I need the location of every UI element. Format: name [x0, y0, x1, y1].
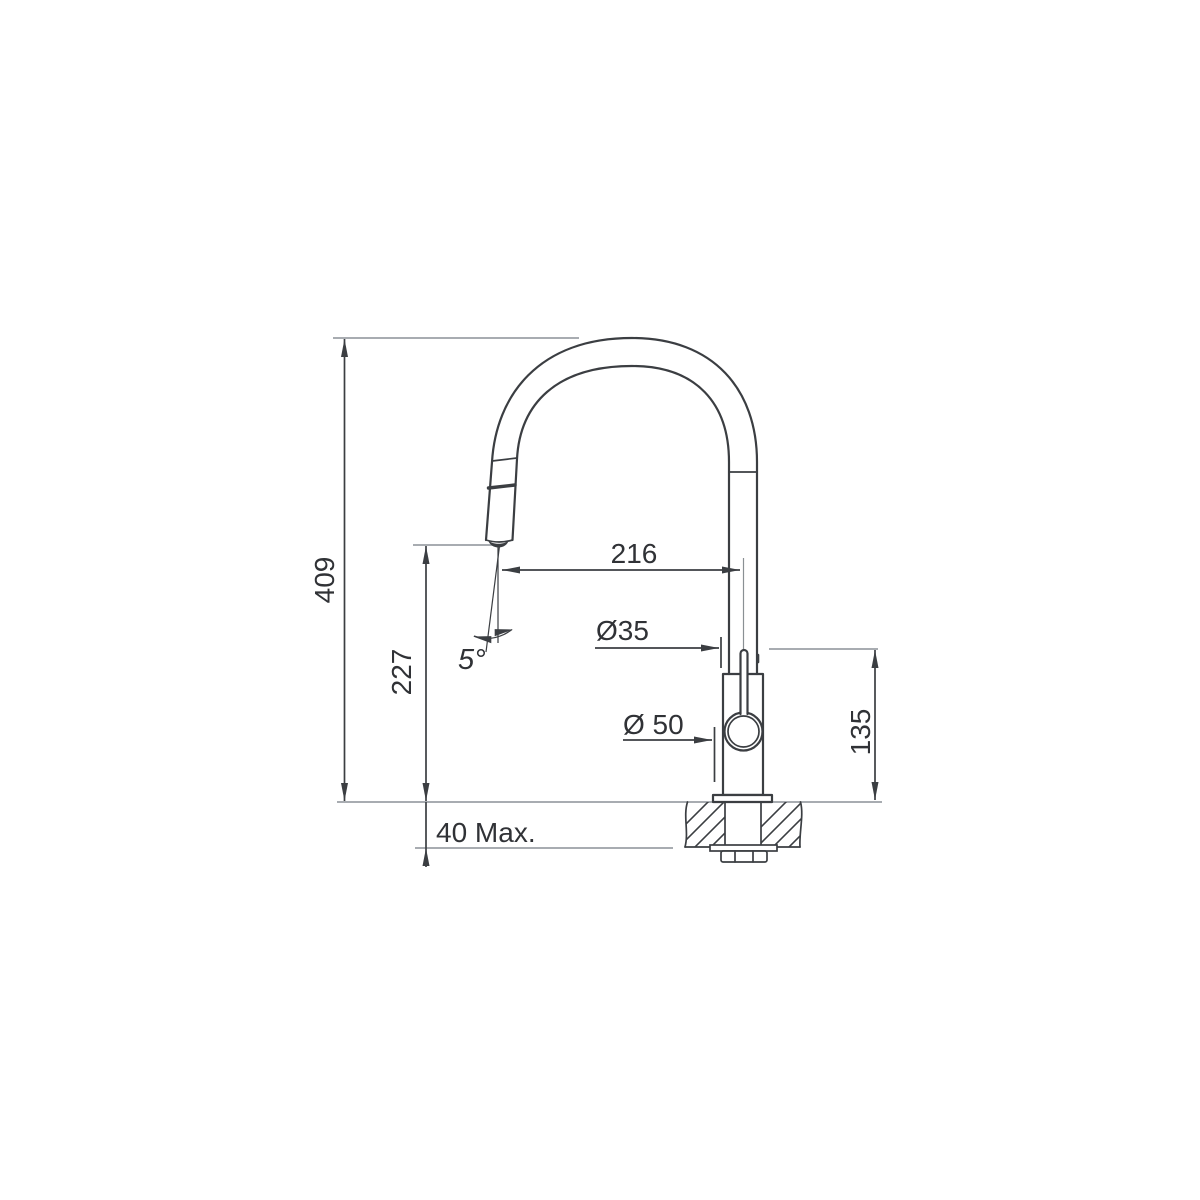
- dimension-lines: [341, 339, 879, 867]
- lever-knob-outer-ring: [725, 713, 763, 751]
- base-flange: [713, 795, 772, 802]
- label-body-diameter: Ø35: [596, 615, 649, 646]
- arrow-right: [722, 567, 740, 574]
- technical-drawing-canvas: 409 227 216 Ø35 Ø 50 135 40 Max. 5°: [0, 0, 1200, 1200]
- countertop-break-edge-left: [685, 802, 688, 847]
- label-outlet-height: 227: [386, 649, 417, 696]
- arrow-down: [341, 783, 348, 801]
- label-base-diameter: Ø 50: [623, 709, 684, 740]
- label-lever-height: 135: [845, 709, 876, 756]
- label-spout-reach: 216: [611, 538, 658, 569]
- arrow-down: [423, 783, 430, 801]
- faucet-outline: [486, 338, 777, 862]
- mounting-nut: [721, 851, 767, 862]
- arrow-right: [694, 737, 712, 744]
- arrow-up: [341, 339, 348, 357]
- label-spray-angle: 5°: [458, 644, 486, 676]
- angle-arc-arrow-left: [472, 633, 492, 643]
- arrow-up: [872, 650, 879, 668]
- lever-knob-inner-ring: [728, 716, 759, 747]
- label-overall-height: 409: [309, 557, 340, 604]
- lever-pin: [741, 650, 748, 714]
- faucet-dimension-drawing: 409 227 216 Ø35 Ø 50 135 40 Max. 5°: [0, 0, 1200, 1200]
- arrow-left: [502, 567, 520, 574]
- arrow-down: [872, 782, 879, 800]
- arrow-up: [423, 848, 430, 866]
- mounting-washer: [710, 845, 777, 851]
- spray-head-joint-upper: [492, 458, 517, 461]
- arrow-up: [423, 546, 430, 564]
- extension-lines: [333, 338, 882, 848]
- countertop-section: [644, 766, 896, 872]
- label-deck-thickness: 40 Max.: [436, 817, 536, 848]
- arrow-right: [701, 645, 719, 652]
- mounting-shank: [725, 802, 761, 845]
- spray-head-joint-lower: [489, 485, 516, 488]
- spray-angle-annotation: [472, 546, 513, 652]
- countertop-break-edge-right: [800, 802, 802, 847]
